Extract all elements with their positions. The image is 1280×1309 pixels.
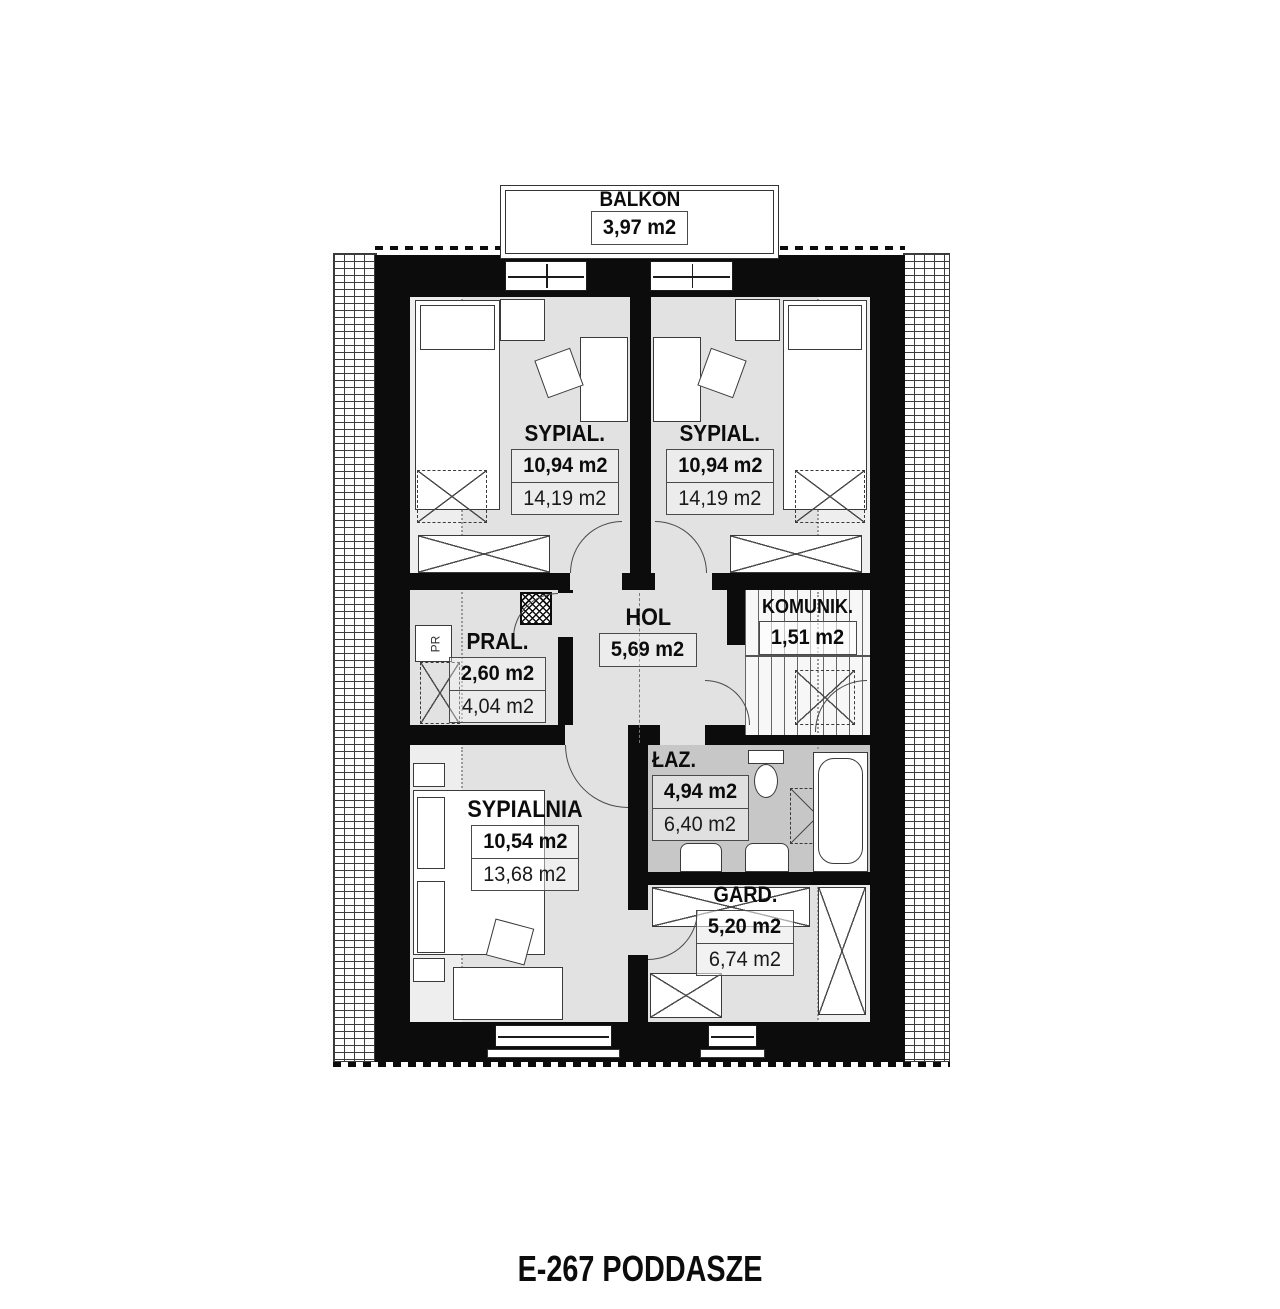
low-cabinet — [795, 470, 865, 523]
room-label-sypial-left: SYPIAL. 10,94 m2 14,19 m2 — [485, 421, 645, 515]
room-name: SYPIALNIA — [467, 797, 582, 822]
room-floor-area: 13,68 m2 — [483, 859, 566, 891]
sink — [745, 843, 789, 872]
room-name: ŁAZ. — [652, 748, 696, 771]
pillow — [788, 305, 862, 350]
desk — [653, 337, 701, 422]
room-label-sypial-right: SYPIAL. 10,94 m2 14,19 m2 — [640, 421, 800, 515]
nightstand — [413, 763, 445, 787]
room-usable-area: 4,94 m2 — [664, 776, 737, 808]
room-name: SYPIAL. — [680, 421, 761, 445]
room-label-gard: GARD. 5,20 m2 6,74 m2 — [690, 883, 800, 976]
stair-landing-line — [745, 655, 870, 657]
room-usable-area: 10,94 m2 — [678, 450, 762, 482]
nightstand — [735, 299, 780, 341]
plan-title: E-267 PODDASZE — [128, 1248, 1152, 1290]
room-label-laz: ŁAZ. 4,94 m2 6,40 m2 — [652, 748, 752, 841]
nightstand — [500, 299, 545, 341]
wall-stub-stairs — [727, 590, 745, 645]
balcony-door — [650, 261, 733, 291]
room-usable-area: 5,20 m2 — [708, 911, 781, 943]
room-usable-area: 10,94 m2 — [523, 450, 607, 482]
room-floor-area: 14,19 m2 — [523, 483, 606, 515]
room-name: HOL — [625, 605, 671, 630]
insulation-dash-bottom — [333, 1062, 950, 1067]
door-opening-sypial-right — [655, 573, 712, 590]
room-floor-area: 6,74 m2 — [709, 944, 781, 976]
room-name: GARD. — [713, 883, 777, 906]
balcony-door — [505, 261, 587, 291]
wardrobe — [418, 535, 550, 573]
wardrobe — [818, 887, 866, 1015]
floor-plan-sheet: BALKON 3,97 m2 — [0, 0, 1280, 1309]
pillow — [420, 305, 495, 350]
door-opening-laz — [660, 725, 705, 745]
nightstand — [413, 958, 445, 982]
room-floor-area: 6,40 m2 — [664, 809, 736, 841]
pillow — [417, 881, 445, 953]
room-name: BALKON — [599, 189, 680, 211]
wardrobe — [650, 973, 722, 1018]
toilet-bowl — [754, 764, 778, 798]
desk — [453, 967, 563, 1020]
room-label-hol: HOL 5,69 m2 — [570, 605, 726, 667]
door-opening-gard — [628, 910, 648, 955]
room-floor-area: 4,04 m2 — [461, 691, 533, 723]
room-label-sypialnia: SYPIALNIA 10,54 m2 13,68 m2 — [445, 797, 605, 891]
room-name: KOMUNIK. — [762, 597, 853, 618]
wardrobe — [730, 535, 862, 573]
window — [708, 1025, 757, 1047]
room-label-komunik: KOMUNIK. 1,51 m2 — [747, 597, 869, 655]
door-opening-sypial-left — [570, 573, 622, 590]
brick-hatch-left — [333, 253, 377, 1062]
room-name: PRAL. — [466, 629, 528, 653]
room-usable-area: 5,69 m2 — [611, 634, 684, 666]
balcony-outline: BALKON 3,97 m2 — [500, 185, 779, 259]
room-usable-area: 1,51 m2 — [771, 622, 844, 654]
brick-hatch-right — [903, 253, 950, 1062]
bathtub-inner — [818, 758, 863, 864]
room-label-balcony: BALKON 3,97 m2 — [501, 189, 778, 245]
room-usable-area: 2,60 m2 — [461, 658, 534, 690]
door-opening-sypialnia — [565, 725, 628, 745]
room-name: SYPIAL. — [525, 421, 606, 445]
window-sill — [487, 1049, 620, 1058]
window-sill — [700, 1049, 765, 1058]
toilet-tank — [748, 750, 784, 764]
room-floor-area: 14,19 m2 — [678, 483, 761, 515]
room-usable-area: 10,54 m2 — [483, 826, 567, 858]
window — [495, 1025, 612, 1047]
desk — [580, 337, 628, 422]
plan-walls: PR SYPIAL. 10, — [375, 255, 905, 1062]
low-cabinet — [417, 470, 487, 523]
sink — [680, 843, 722, 872]
pillow — [417, 797, 445, 869]
room-area: 3,97 m2 — [603, 212, 676, 244]
room-label-pral: PRAL. 2,60 m2 4,04 m2 — [430, 629, 565, 723]
